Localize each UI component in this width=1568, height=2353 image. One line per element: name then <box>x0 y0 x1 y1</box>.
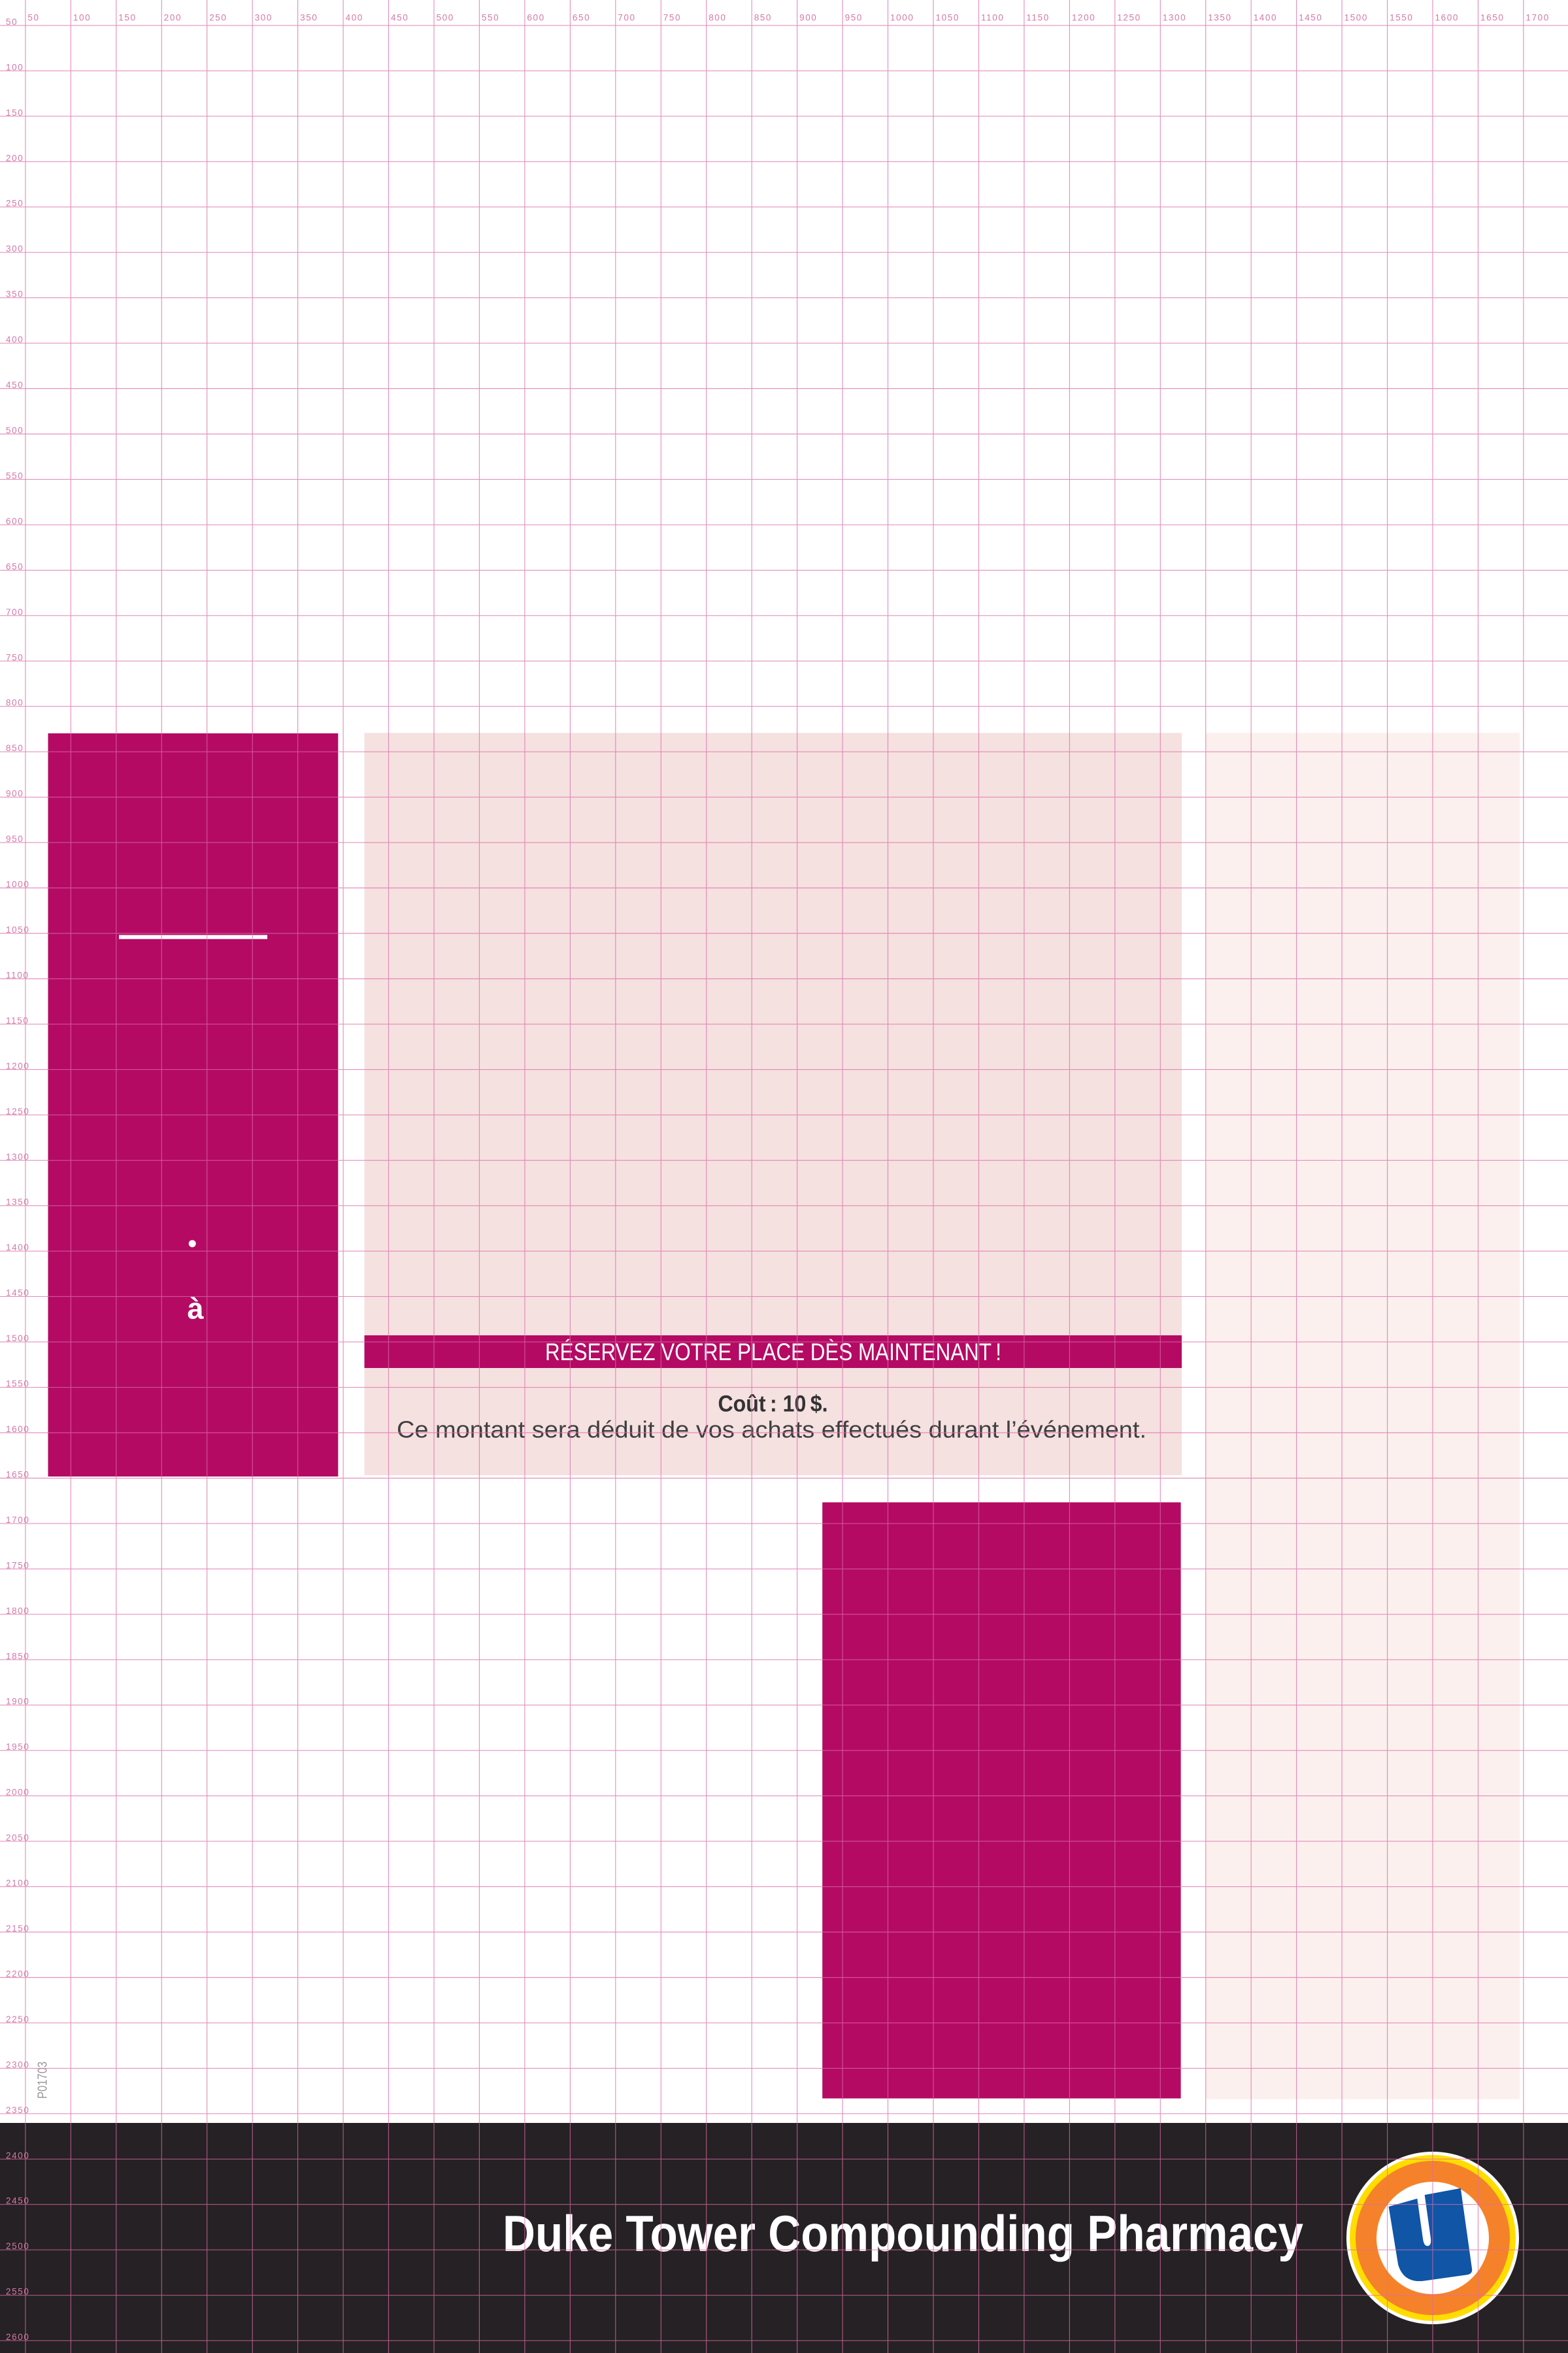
svg-text:1750: 1750 <box>6 1560 29 1570</box>
svg-text:P01703: P01703 <box>36 2061 50 2099</box>
svg-text:800: 800 <box>709 13 726 23</box>
svg-text:300: 300 <box>255 13 273 23</box>
svg-text:1600: 1600 <box>1435 13 1459 23</box>
svg-text:1450: 1450 <box>6 1288 29 1298</box>
svg-text:1400: 1400 <box>1254 13 1277 23</box>
svg-text:450: 450 <box>391 13 409 23</box>
svg-text:500: 500 <box>437 13 454 23</box>
svg-text:350: 350 <box>300 13 318 23</box>
svg-text:1550: 1550 <box>6 1379 29 1389</box>
svg-text:100: 100 <box>73 13 91 23</box>
svg-text:750: 750 <box>6 652 24 662</box>
svg-text:600: 600 <box>527 13 544 23</box>
svg-text:650: 650 <box>6 561 24 571</box>
svg-text:750: 750 <box>663 13 681 23</box>
svg-text:1600: 1600 <box>6 1424 29 1434</box>
svg-text:2050: 2050 <box>6 1833 29 1843</box>
svg-text:450: 450 <box>6 380 24 390</box>
svg-text:1150: 1150 <box>6 1016 29 1026</box>
svg-text:400: 400 <box>6 335 24 344</box>
svg-text:700: 700 <box>6 607 24 617</box>
svg-text:2000: 2000 <box>6 1788 29 1797</box>
svg-text:1650: 1650 <box>6 1470 29 1480</box>
svg-text:850: 850 <box>6 743 24 753</box>
svg-text:1050: 1050 <box>936 13 959 23</box>
svg-text:1850: 1850 <box>6 1651 29 1661</box>
svg-text:850: 850 <box>754 13 772 23</box>
svg-text:1050: 1050 <box>6 925 29 935</box>
svg-text:1100: 1100 <box>6 971 29 980</box>
svg-text:1500: 1500 <box>6 1333 29 1343</box>
svg-text:1500: 1500 <box>1344 13 1368 23</box>
svg-text:800: 800 <box>6 698 24 708</box>
svg-text:Duke Tower Compounding Pharmac: Duke Tower Compounding Pharmacy <box>503 2205 1303 2262</box>
svg-text:250: 250 <box>209 13 227 23</box>
svg-text:650: 650 <box>573 13 590 23</box>
svg-text:1350: 1350 <box>1208 13 1231 23</box>
svg-text:1450: 1450 <box>1299 13 1322 23</box>
svg-text:Coût : 10 $.: Coût : 10 $. <box>718 1392 828 1417</box>
svg-text:1300: 1300 <box>6 1152 29 1161</box>
svg-text:150: 150 <box>6 108 24 118</box>
svg-text:50: 50 <box>27 13 39 23</box>
svg-text:1000: 1000 <box>890 13 914 23</box>
svg-text:250: 250 <box>6 199 24 209</box>
svg-text:RÉSERVEZ VOTRE PLACE DÈS MAINT: RÉSERVEZ VOTRE PLACE DÈS MAINTENANT ! <box>545 1339 1001 1365</box>
svg-text:1350: 1350 <box>6 1197 29 1207</box>
svg-text:100: 100 <box>6 62 24 72</box>
svg-text:1700: 1700 <box>1526 13 1549 23</box>
svg-text:400: 400 <box>346 13 363 23</box>
svg-text:2600: 2600 <box>6 2332 29 2342</box>
svg-text:1550: 1550 <box>1390 13 1413 23</box>
svg-text:2300: 2300 <box>6 2060 29 2069</box>
svg-text:1800: 1800 <box>6 1606 29 1616</box>
svg-text:150: 150 <box>118 13 136 23</box>
svg-text:2500: 2500 <box>6 2241 29 2251</box>
svg-text:1000: 1000 <box>6 880 29 890</box>
svg-text:900: 900 <box>799 13 817 23</box>
svg-text:2250: 2250 <box>6 2014 29 2024</box>
svg-text:200: 200 <box>6 153 24 163</box>
svg-text:550: 550 <box>6 471 24 480</box>
svg-text:2100: 2100 <box>6 1878 29 1888</box>
svg-text:2400: 2400 <box>6 2150 29 2160</box>
svg-text:950: 950 <box>845 13 863 23</box>
svg-text:350: 350 <box>6 290 24 299</box>
svg-text:Ce montant sera déduit de vos: Ce montant sera déduit de vos achats eff… <box>397 1416 1146 1443</box>
svg-text:700: 700 <box>618 13 635 23</box>
svg-text:2550: 2550 <box>6 2287 29 2297</box>
svg-text:1900: 1900 <box>6 1697 29 1707</box>
svg-text:900: 900 <box>6 789 24 799</box>
svg-text:2450: 2450 <box>6 2196 29 2206</box>
svg-text:1200: 1200 <box>1072 13 1095 23</box>
svg-text:1200: 1200 <box>6 1061 29 1071</box>
svg-text:550: 550 <box>482 13 499 23</box>
svg-text:50: 50 <box>6 17 18 27</box>
svg-text:1250: 1250 <box>6 1107 29 1116</box>
svg-text:1150: 1150 <box>1026 13 1049 23</box>
svg-text:600: 600 <box>6 516 24 526</box>
svg-text:1300: 1300 <box>1163 13 1186 23</box>
svg-text:950: 950 <box>6 834 24 844</box>
svg-text:2350: 2350 <box>6 2105 29 2115</box>
svg-text:2150: 2150 <box>6 1924 29 1933</box>
svg-text:500: 500 <box>6 426 24 435</box>
svg-text:200: 200 <box>164 13 182 23</box>
svg-text:2200: 2200 <box>6 1969 29 1979</box>
svg-text:1100: 1100 <box>981 13 1004 23</box>
svg-text:1700: 1700 <box>6 1515 29 1525</box>
svg-text:1250: 1250 <box>1117 13 1141 23</box>
svg-text:300: 300 <box>6 244 24 254</box>
svg-text:1950: 1950 <box>6 1742 29 1752</box>
svg-text:1650: 1650 <box>1480 13 1504 23</box>
svg-text:1400: 1400 <box>6 1243 29 1252</box>
